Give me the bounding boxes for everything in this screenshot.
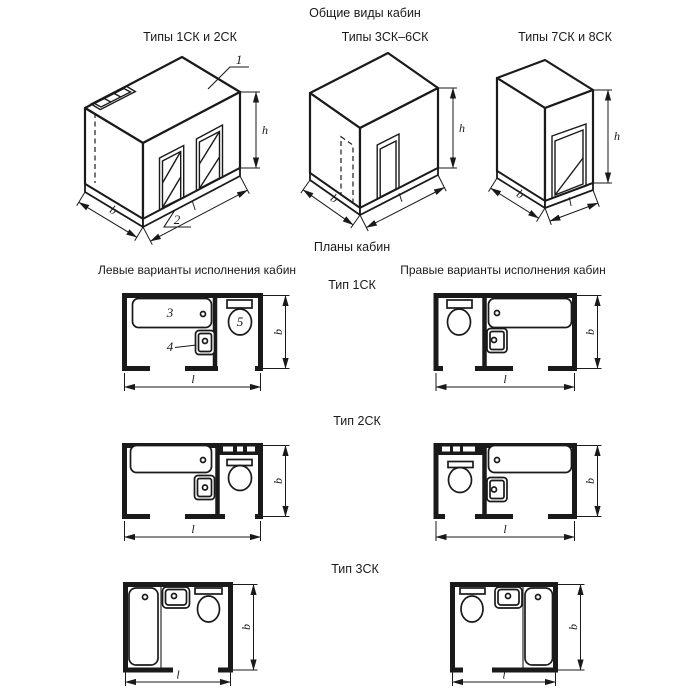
svg-text:l: l: [503, 372, 507, 386]
view-label-types-3sk-6sk: Типы 3СК–6СК: [342, 30, 429, 44]
vent-shelf-unit: [218, 443, 264, 455]
dimension-b: b: [558, 585, 585, 671]
svg-text:l: l: [191, 522, 195, 536]
svg-text:b: b: [583, 329, 597, 335]
plan-row-label-3sk: Тип 3СК: [331, 562, 379, 576]
left-variants-header: Левые варианты исполнения кабин: [98, 263, 296, 277]
dimension-b: b: [233, 585, 258, 671]
svg-text:h: h: [262, 123, 268, 137]
washbasin: [163, 587, 190, 608]
dimension-b: b: [577, 446, 602, 517]
washbasin: 4: [167, 331, 215, 355]
plan-row-label-2sk: Тип 2СК: [333, 414, 381, 428]
bathtub: [129, 588, 158, 665]
toilet: [460, 588, 485, 622]
right-variants-header: Правые варианты исполнения кабин: [400, 263, 606, 277]
bathtub: [525, 588, 553, 665]
dimension-h: h: [593, 90, 620, 183]
callout-ceiling-panel: 1: [208, 52, 249, 89]
svg-text:b: b: [271, 329, 285, 335]
dimension-l: l: [125, 521, 261, 541]
bathtub: [489, 299, 572, 328]
dimension-l: l: [125, 372, 261, 391]
cabin-box: [310, 53, 438, 215]
svg-text:l: l: [176, 668, 180, 682]
svg-text:b: b: [583, 478, 597, 484]
toilet: 5: [227, 300, 252, 335]
washbasin: [495, 587, 522, 608]
dimension-l: l: [436, 372, 575, 391]
svg-text:3: 3: [166, 305, 174, 320]
plans-title: Планы кабин: [314, 240, 390, 254]
plan-row-label-1sk: Тип 1СК: [328, 278, 376, 292]
svg-text:1: 1: [236, 52, 243, 67]
svg-text:4: 4: [167, 339, 174, 354]
toilet: [448, 462, 473, 493]
plan-3sk-left: l b: [110, 576, 267, 688]
svg-text:l: l: [503, 522, 507, 536]
svg-text:l: l: [191, 372, 195, 386]
svg-text:b: b: [239, 624, 253, 630]
view-label-types-1sk-2sk: Типы 1СК и 2СК: [143, 30, 237, 44]
plan-2sk-right: l b: [426, 438, 608, 548]
svg-text:5: 5: [237, 314, 244, 329]
dimension-h: h: [438, 88, 465, 168]
toilet: [447, 300, 472, 335]
view-label-types-7sk-8sk: Типы 7СК и 8СК: [518, 30, 612, 44]
plan-1sk-left: 3 4 5 l b: [113, 288, 295, 395]
isometric-view-types-7sk-8sk: b l h: [472, 55, 632, 233]
plan-2sk-left: l b: [113, 438, 295, 548]
page-title: Общие виды кабин: [309, 6, 421, 20]
svg-text:h: h: [459, 121, 465, 135]
plan-1sk-right: l b: [426, 288, 608, 395]
washbasin: [487, 478, 507, 502]
dimension-b: b: [263, 296, 290, 369]
svg-text:b: b: [271, 478, 285, 484]
isometric-view-types-3sk-6sk: b l h: [283, 50, 473, 238]
toilet: [195, 588, 222, 622]
bathtub: 3: [133, 299, 212, 328]
bathtub: [489, 446, 572, 473]
dimension-l: l: [436, 521, 575, 541]
dimension-b: b: [263, 446, 290, 517]
plan-3sk-right: l b: [442, 576, 599, 688]
isometric-view-types-1sk-2sk: 1 2 b l h: [60, 50, 276, 250]
toilet: [227, 460, 252, 491]
drawing-sheet: Общие виды кабин Типы 1СК и 2СК Типы 3СК…: [0, 0, 700, 700]
vent-shelf-unit: [435, 443, 485, 455]
bathtub: [131, 446, 212, 473]
svg-text:h: h: [614, 129, 620, 143]
dimension-h: h: [240, 92, 268, 168]
dimension-b: b: [577, 296, 602, 369]
svg-text:2: 2: [174, 212, 181, 227]
washbasin: [195, 476, 215, 500]
svg-text:b: b: [566, 624, 580, 630]
washbasin: [487, 329, 507, 353]
